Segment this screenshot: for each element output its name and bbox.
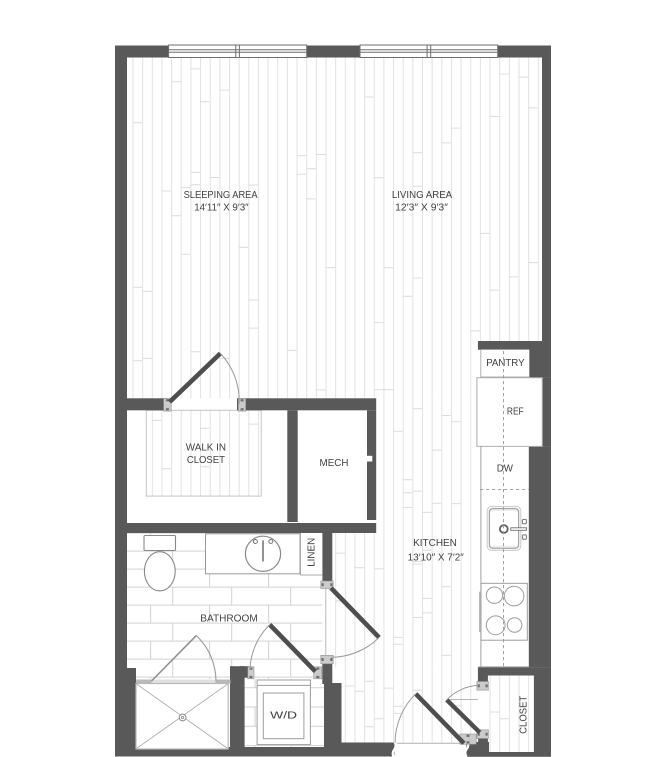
svg-text:CLOSET: CLOSET: [187, 455, 225, 466]
svg-text:LINEN: LINEN: [306, 538, 317, 567]
svg-text:WALK IN: WALK IN: [186, 442, 226, 453]
svg-text:CLOSET: CLOSET: [518, 696, 529, 734]
svg-text:PANTRY: PANTRY: [486, 358, 525, 369]
svg-text:LIVING AREA: LIVING AREA: [392, 190, 452, 201]
svg-text:SLEEPING AREA: SLEEPING AREA: [184, 190, 258, 201]
svg-text:14′11″ X 9′3″: 14′11″ X 9′3″: [194, 202, 249, 213]
svg-text:W/D: W/D: [270, 711, 297, 722]
svg-text:BATHROOM: BATHROOM: [200, 613, 258, 624]
svg-text:13′10″ X 7′2″: 13′10″ X 7′2″: [408, 552, 464, 563]
svg-text:MECH: MECH: [320, 458, 349, 469]
svg-text:12′3″ X 9′3″: 12′3″ X 9′3″: [395, 202, 448, 213]
svg-text:KITCHEN: KITCHEN: [413, 538, 457, 549]
svg-text:DW: DW: [497, 464, 513, 475]
svg-text:REF: REF: [507, 407, 524, 418]
